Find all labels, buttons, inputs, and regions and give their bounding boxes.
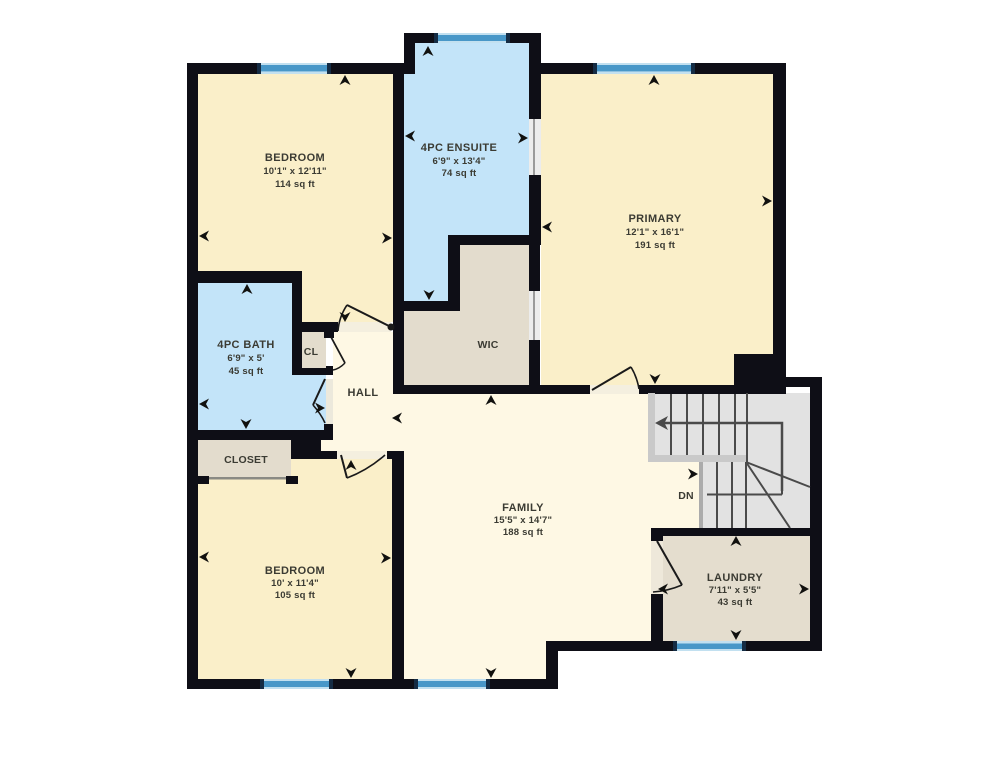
svg-text:7'11" x 5'5": 7'11" x 5'5" [709,585,761,596]
svg-text:12'1" x 16'1": 12'1" x 16'1" [626,227,684,238]
svg-text:4PC BATH: 4PC BATH [217,339,274,351]
svg-text:10' x 11'4": 10' x 11'4" [271,578,319,589]
svg-text:BEDROOM: BEDROOM [265,152,325,164]
svg-text:PRIMARY: PRIMARY [628,213,681,225]
svg-text:4PC ENSUITE: 4PC ENSUITE [421,142,498,154]
svg-text:114 sq ft: 114 sq ft [275,179,315,190]
svg-text:CLOSET: CLOSET [224,454,268,466]
svg-text:HALL: HALL [348,387,379,399]
svg-text:BEDROOM: BEDROOM [265,565,325,577]
svg-text:FAMILY: FAMILY [502,502,544,514]
svg-text:15'5" x 14'7": 15'5" x 14'7" [494,515,552,526]
svg-text:105 sq ft: 105 sq ft [275,590,316,601]
svg-text:43 sq ft: 43 sq ft [718,597,753,608]
svg-text:45 sq ft: 45 sq ft [229,366,264,377]
svg-text:191 sq ft: 191 sq ft [635,240,676,251]
svg-text:LAUNDRY: LAUNDRY [707,572,763,584]
svg-text:188 sq ft: 188 sq ft [503,527,544,538]
svg-text:6'9" x 13'4": 6'9" x 13'4" [433,156,486,167]
svg-text:WIC: WIC [477,339,498,351]
svg-text:6'9" x 5': 6'9" x 5' [227,353,264,364]
svg-text:DN: DN [678,490,694,502]
svg-text:74 sq ft: 74 sq ft [442,168,477,179]
svg-text:10'1" x 12'11": 10'1" x 12'11" [263,166,326,177]
svg-text:CL: CL [304,346,319,358]
